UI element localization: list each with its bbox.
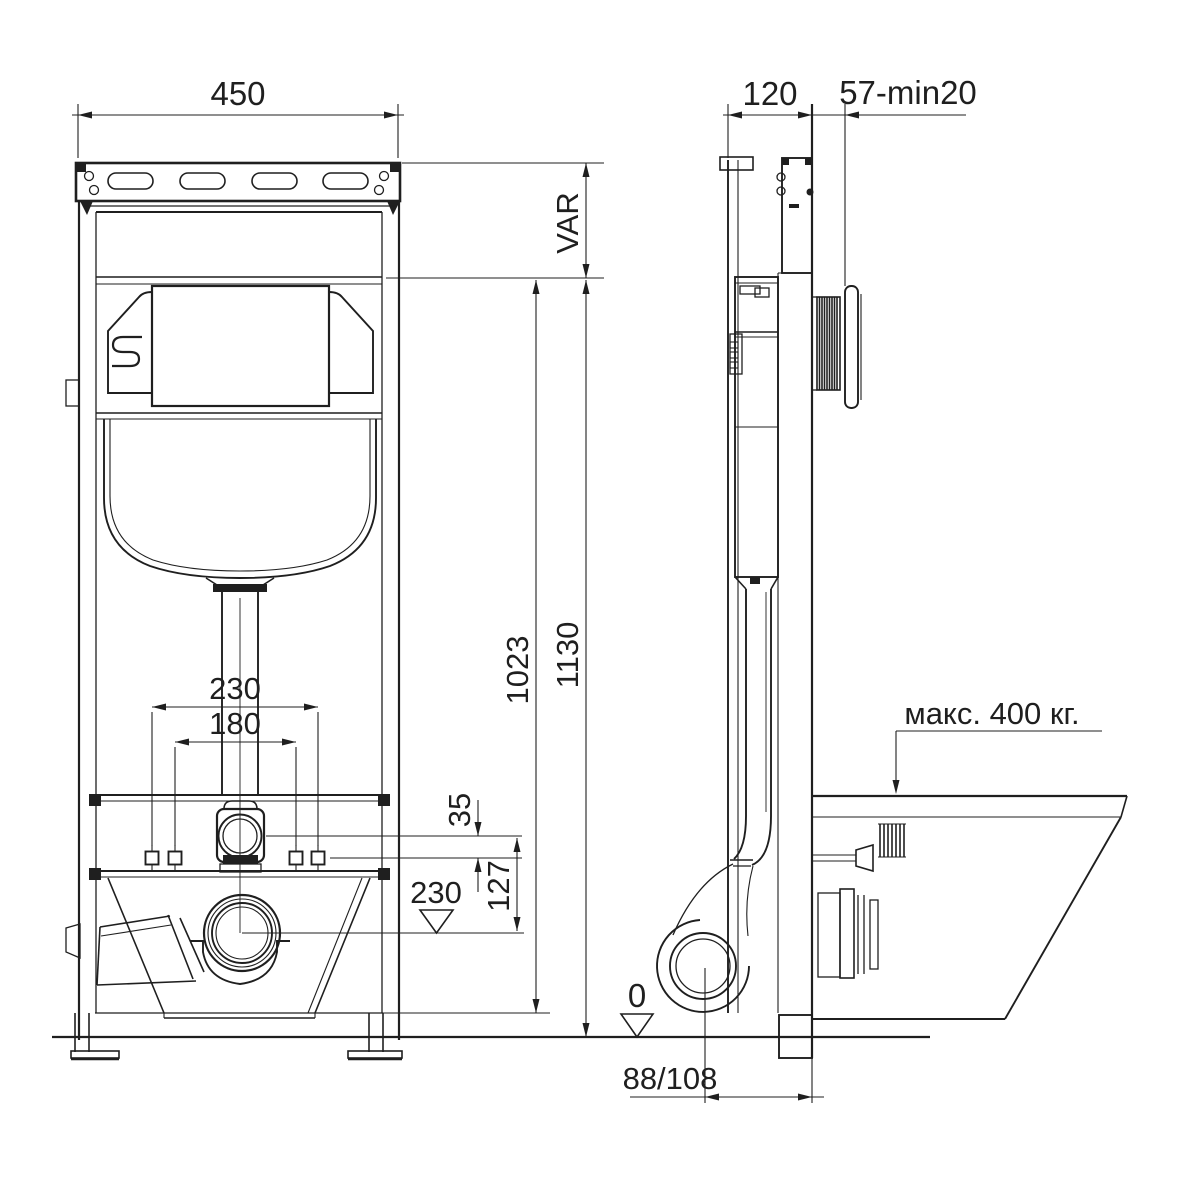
dim-180-label: 180 (209, 706, 261, 741)
arrow (304, 704, 318, 711)
left-chamfer-block (108, 292, 152, 393)
elbow-flange (180, 918, 204, 972)
push-plate (845, 286, 858, 408)
crossbar (89, 794, 390, 880)
bracket-outline (76, 163, 400, 201)
arrow (728, 112, 742, 119)
side-frame (720, 104, 814, 1058)
rail-clip (66, 380, 79, 406)
bolt (169, 852, 182, 865)
actuator-assembly (812, 286, 861, 408)
upright-slot (789, 204, 799, 208)
bolt (146, 852, 159, 865)
cistern-side (730, 277, 778, 589)
arrow (893, 780, 900, 794)
front-dimensions: 450 VAR 1023 1130 230 180 (72, 75, 604, 1037)
bowl-underside (1005, 817, 1121, 1019)
bowl-fixings (812, 824, 906, 978)
upright-hole (777, 187, 785, 195)
right-foot-plate (348, 1051, 402, 1058)
crossbar-weld-mark (378, 794, 390, 806)
elbow-duct-top (100, 916, 170, 927)
bracket-hole (90, 186, 99, 195)
arrow (533, 999, 540, 1013)
arrow (583, 264, 590, 278)
side-view (657, 104, 1127, 1058)
flush-pipe-front (206, 578, 274, 933)
plate-slant-left (108, 878, 164, 1013)
dim-outlet-offset-label: 88/108 (623, 1061, 718, 1096)
sleeve-hatch (820, 297, 838, 390)
dim-230-label: 230 (209, 671, 261, 706)
bracket-corner-mark (390, 163, 400, 172)
max-load-label: макс. 400 кг. (904, 696, 1079, 731)
arrow (282, 739, 296, 746)
retainer-clip (112, 337, 142, 366)
plate-slant-right (315, 878, 370, 1013)
dim-127-label: 127 (481, 860, 516, 912)
bracket-hole (380, 172, 389, 181)
elbow-flange (168, 915, 193, 979)
elbow-opening-inner (676, 939, 730, 993)
fitting-collar (223, 855, 258, 864)
elbow-duct-top2 (101, 925, 171, 936)
cistern-outlet-mark (750, 577, 760, 584)
fitting-cap (224, 801, 257, 809)
tank-inner (110, 419, 370, 571)
outlet-sleeve (818, 889, 878, 978)
toilet-bowl (812, 796, 1127, 1019)
technical-drawing-page: 450 VAR 1023 1130 230 180 (0, 0, 1200, 1200)
left-foot-plate (71, 1051, 119, 1058)
threaded-rod (878, 824, 906, 857)
funnel-edge (263, 578, 274, 585)
arrow (798, 112, 812, 119)
installation-frame-drawing: 450 VAR 1023 1130 230 180 (0, 0, 1200, 1200)
pipe-elbow (752, 816, 771, 865)
valve-detail (740, 286, 760, 294)
arrow (514, 917, 521, 931)
arrow (533, 280, 540, 294)
valve-clip-step (730, 342, 738, 348)
upright-mark (782, 158, 789, 165)
datum-triangle (420, 910, 453, 933)
valve-clip-step (730, 352, 738, 358)
elbow-duct-cap (97, 927, 100, 985)
elbow-duct-bottom (97, 981, 196, 985)
anchor-cone (856, 845, 873, 871)
arrow (78, 112, 92, 119)
bracket-slot (323, 173, 368, 189)
dim-1023-label: 1023 (500, 636, 535, 705)
arrow (514, 838, 521, 852)
dim-1130-label: 1130 (550, 622, 585, 689)
frame-rails (66, 201, 399, 1040)
bracket-slot (252, 173, 297, 189)
sleeve-section (818, 893, 840, 977)
side-top-bracket (720, 157, 753, 170)
bolt (312, 852, 325, 865)
arrow (175, 739, 189, 746)
crossbar-weld-mark (89, 794, 101, 806)
cistern-front (96, 286, 382, 578)
bracket-hole (85, 172, 94, 181)
cistern-taper (735, 577, 746, 589)
front-upright (782, 158, 812, 273)
arrow (583, 280, 590, 294)
bracket-slot (108, 173, 153, 189)
bracket-hole (375, 186, 384, 195)
crossbar-weld-mark (89, 868, 101, 880)
sleeve-section (870, 900, 878, 969)
valve-clip-step (730, 362, 738, 368)
datum-zero-label: 0 (628, 977, 646, 1014)
front-view (66, 163, 402, 1059)
top-bracket (76, 163, 400, 215)
elbow-opening (670, 933, 736, 999)
sleeve-section (840, 889, 854, 978)
arrow (798, 1094, 812, 1101)
side-dimensions: 120 57-min20 макс. 400 кг. 0 88/108 (621, 74, 1102, 1103)
funnel-collar (213, 584, 267, 592)
plate-slant-right2 (308, 878, 362, 1013)
bolt (290, 852, 303, 865)
funnel-edge (206, 578, 217, 585)
dim-depth-label: 120 (742, 75, 797, 112)
crossbar-weld-mark (378, 868, 390, 880)
upright-hole (777, 173, 785, 181)
bracket-wedge (80, 201, 93, 215)
bracket-corner-mark (76, 163, 86, 172)
elbow-link2 (747, 866, 753, 936)
arrow (583, 1023, 590, 1037)
arrow (845, 112, 859, 119)
right-chamfer-block (329, 292, 373, 393)
dim-wall-range-label: 57-min20 (839, 74, 977, 111)
dim-35-label: 35 (442, 793, 477, 827)
drain-outlet-front (66, 895, 290, 985)
dim-var-label: VAR (550, 192, 585, 253)
dim-width-label: 450 (210, 75, 265, 112)
arrow (384, 112, 398, 119)
datum-triangle-zero (621, 1014, 653, 1037)
bowl-front-edge (1121, 796, 1127, 817)
flush-pipe-side (730, 589, 771, 866)
cistern-taper (771, 577, 778, 589)
valve-detail (755, 288, 769, 297)
arrow (583, 163, 590, 177)
pipe-elbow (734, 816, 746, 859)
access-window (152, 286, 329, 406)
tank-outline (104, 419, 376, 578)
dim-outlet-height-label: 230 (410, 875, 462, 910)
arrow (152, 704, 166, 711)
bracket-slot (180, 173, 225, 189)
